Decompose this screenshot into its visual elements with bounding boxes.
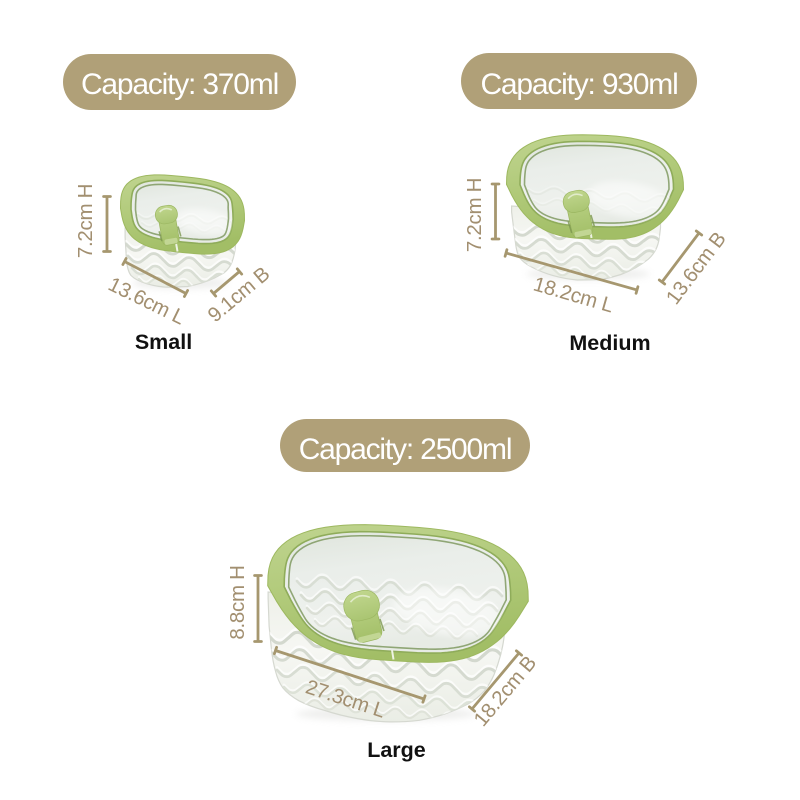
svg-text:Large: Large xyxy=(367,738,426,762)
svg-text:Medium: Medium xyxy=(569,331,650,355)
svg-text:Small: Small xyxy=(135,330,192,354)
svg-text:8.8cm H: 8.8cm H xyxy=(226,565,249,639)
svg-text:Capacity: 930ml: Capacity: 930ml xyxy=(480,68,677,101)
svg-text:Capacity: 370ml: Capacity: 370ml xyxy=(81,68,278,101)
svg-text:Capacity: 2500ml: Capacity: 2500ml xyxy=(299,433,512,466)
svg-text:7.2cm H: 7.2cm H xyxy=(463,178,486,252)
svg-text:7.2cm H: 7.2cm H xyxy=(74,184,97,258)
